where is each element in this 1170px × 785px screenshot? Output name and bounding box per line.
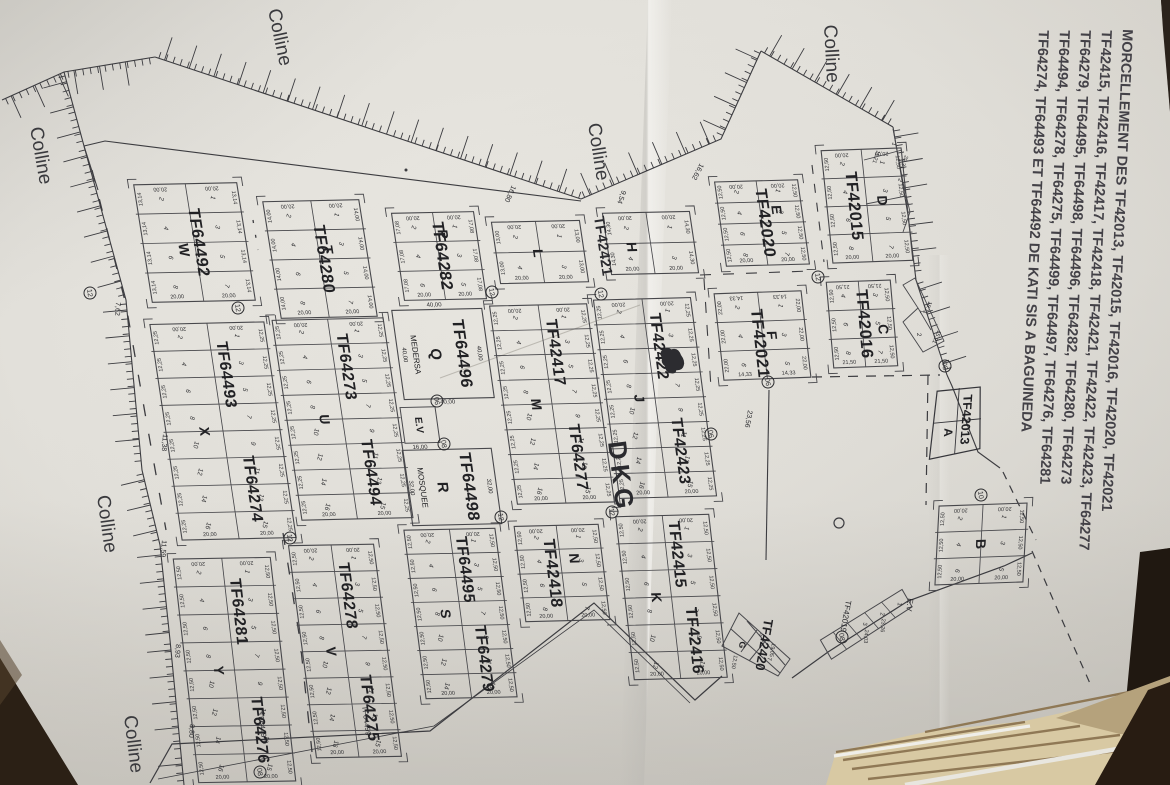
svg-text:12: 12 [233,304,241,313]
svg-text:20,00: 20,00 [611,301,626,307]
svg-text:8,93: 8,93 [173,644,181,658]
svg-text:21,50: 21,50 [836,283,850,289]
svg-text:E.V: E.V [412,417,425,434]
svg-text:20,00: 20,00 [215,775,229,781]
svg-text:W: W [175,243,193,257]
svg-text:20,00: 20,00 [322,512,337,518]
svg-text:20,00: 20,00 [170,294,185,300]
svg-text:10: 10 [976,491,984,500]
svg-text:20,00: 20,00 [617,214,632,220]
svg-text:20,00: 20,00 [417,292,432,298]
svg-text:12,50: 12,50 [938,538,945,552]
svg-text:20,00: 20,00 [345,309,360,315]
svg-text:20,00: 20,00 [303,547,318,553]
svg-text:12,50: 12,50 [888,345,895,359]
svg-text:20,00: 20,00 [328,202,343,208]
svg-text:20,00: 20,00 [885,253,899,259]
svg-text:20,00: 20,00 [280,203,295,209]
svg-text:20,00: 20,00 [153,186,168,192]
svg-text:20,00: 20,00 [950,576,964,582]
svg-text:20,00: 20,00 [582,495,597,501]
svg-text:S: S [437,609,454,619]
svg-text:12,50: 12,50 [1015,562,1022,576]
svg-text:F: F [764,331,781,341]
svg-text:12,50: 12,50 [834,347,841,361]
svg-text:40,00: 40,00 [426,302,442,308]
svg-text:20,00: 20,00 [349,320,364,326]
svg-text:12,50: 12,50 [829,289,836,303]
svg-text:20,00: 20,00 [377,511,392,517]
svg-text:20,00: 20,00 [539,614,553,620]
svg-text:20,00: 20,00 [172,325,187,331]
svg-text:7,62: 7,62 [113,302,121,316]
svg-text:M: M [528,398,546,410]
svg-text:20,00: 20,00 [650,671,664,677]
svg-text:Y: Y [210,665,227,675]
svg-text:12,50: 12,50 [937,565,944,579]
svg-text:08: 08 [255,768,263,777]
svg-text:12,50: 12,50 [831,318,838,332]
svg-text:20,00: 20,00 [441,691,456,697]
svg-text:E.V: E.V [904,598,915,613]
svg-text:20,00: 20,00 [559,275,574,281]
svg-text:20,00: 20,00 [556,306,571,312]
svg-text:12,50: 12,50 [883,288,890,302]
svg-text:Colline: Colline [819,24,843,83]
svg-text:20,00: 20,00 [770,182,785,188]
svg-text:X: X [196,427,213,437]
svg-text:20,00: 20,00 [507,307,522,313]
svg-text:20,00: 20,00 [739,258,754,264]
svg-text:20,00: 20,00 [729,183,744,189]
svg-text:20,00: 20,00 [994,575,1008,581]
svg-text:U: U [316,414,333,424]
svg-text:06: 06 [432,397,440,406]
svg-text:V: V [323,646,340,656]
svg-text:12: 12 [596,290,604,299]
svg-text:20,00: 20,00 [330,750,345,756]
svg-text:21,50: 21,50 [867,282,881,288]
svg-text:J: J [631,394,648,402]
svg-text:20,00: 20,00 [222,293,237,299]
svg-text:T: T [319,245,336,254]
svg-text:20,00: 20,00 [551,222,566,228]
svg-text:R: R [433,482,452,493]
svg-text:E: E [768,205,785,215]
svg-text:14,33: 14,33 [773,293,787,299]
svg-text:20,00: 20,00 [191,560,205,566]
svg-text:H: H [623,242,640,252]
svg-text:20,00: 20,00 [528,527,542,533]
svg-text:20,00: 20,00 [405,214,420,220]
svg-text:20,00: 20,00 [372,749,387,755]
svg-text:08: 08 [837,633,845,642]
svg-text:D: D [874,195,891,206]
svg-text:23,26: 23,26 [879,618,886,632]
svg-text:06: 06 [763,378,771,387]
svg-text:20,00: 20,00 [239,559,253,565]
svg-text:12,50: 12,50 [1018,509,1025,523]
svg-text:20,00: 20,00 [625,267,640,273]
svg-text:P: P [434,229,451,239]
svg-text:20,00: 20,00 [507,223,522,229]
svg-text:12,50: 12,50 [1016,536,1023,550]
svg-text:20,00: 20,00 [874,150,888,156]
svg-text:20,00: 20,00 [632,517,646,523]
svg-text:12: 12 [607,508,615,517]
svg-text:14,33: 14,33 [729,294,743,300]
svg-text:20,00: 20,00 [260,531,275,537]
svg-text:20,00: 20,00 [845,255,859,261]
svg-text:A: A [941,428,956,438]
svg-text:14,33: 14,33 [781,370,795,376]
svg-text:12: 12 [285,534,293,543]
svg-text:11,59: 11,59 [159,540,167,558]
svg-text:08: 08 [439,440,447,449]
svg-text:20,00: 20,00 [998,505,1012,511]
svg-text:20,00: 20,00 [684,489,699,495]
svg-text:20,00: 20,00 [581,612,595,618]
svg-text:20,00: 20,00 [659,300,674,306]
svg-text:12: 12 [813,273,821,282]
svg-text:20,00: 20,00 [669,266,684,272]
svg-text:12,50: 12,50 [940,512,947,526]
svg-text:20,00: 20,00 [458,292,473,298]
svg-text:12: 12 [487,288,495,297]
svg-text:20,00: 20,00 [346,546,361,552]
svg-text:Q: Q [426,348,445,360]
svg-text:20,00: 20,00 [515,276,530,282]
svg-text:C: C [875,324,892,335]
svg-text:12: 12 [496,513,504,522]
svg-text:8,80: 8,80 [187,724,195,738]
svg-text:20,00: 20,00 [203,532,218,538]
svg-text:B: B [973,539,990,550]
svg-text:08: 08 [940,362,948,371]
svg-text:20,00: 20,00 [570,526,584,532]
svg-text:N: N [566,553,583,563]
svg-text:20,00: 20,00 [834,151,848,157]
svg-text:20,00: 20,00 [297,310,312,316]
svg-text:14,33: 14,33 [738,372,752,378]
svg-text:21,50: 21,50 [874,359,888,365]
svg-text:24,03: 24,03 [862,629,869,643]
svg-text:20,00: 20,00 [229,324,244,330]
svg-text:20,00: 20,00 [293,321,308,327]
svg-text:20,00: 20,00 [954,507,968,513]
svg-text:20,00: 20,00 [534,496,549,502]
svg-text:21,50: 21,50 [842,360,856,366]
svg-text:20,00: 20,00 [446,213,461,219]
svg-text:20,00: 20,00 [204,185,219,191]
svg-text:20,00: 20,00 [661,213,676,219]
svg-text:20,00: 20,00 [781,257,796,263]
svg-text:12: 12 [85,289,93,298]
svg-text:K: K [648,592,665,602]
svg-text:L: L [530,249,547,258]
svg-text:06: 06 [706,430,714,439]
svg-text:20,00: 20,00 [420,531,435,537]
svg-text:11,38: 11,38 [160,434,168,452]
